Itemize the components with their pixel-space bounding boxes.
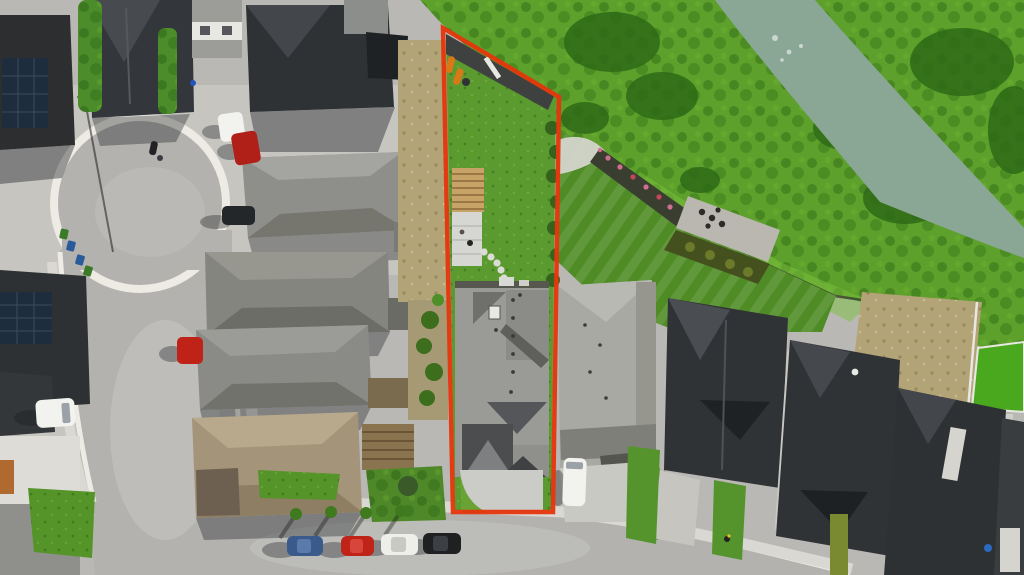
tanhouse-pergola xyxy=(362,424,414,470)
house3-roof-light-wing xyxy=(344,0,388,34)
solar-panels xyxy=(2,58,48,128)
artificial-turf xyxy=(972,342,1024,412)
red-car-left-driveway xyxy=(177,337,203,364)
olive-side-strip xyxy=(830,514,848,575)
tanhouse-garage-dark xyxy=(196,468,240,516)
patio-furniture xyxy=(460,230,465,235)
rear-deck xyxy=(499,277,514,286)
row-front-lawn-1 xyxy=(626,446,660,544)
subject-house xyxy=(455,277,549,477)
building-light-wall xyxy=(192,22,242,40)
building-window xyxy=(200,26,210,35)
aerial-photo-canvas xyxy=(0,0,1024,575)
blue-bin-row xyxy=(984,544,992,552)
hedge-strip-2-tex xyxy=(158,28,177,114)
house3-shadow xyxy=(250,107,395,152)
grill xyxy=(467,240,473,246)
corner-lawn-tex xyxy=(258,470,340,500)
patio xyxy=(452,212,482,266)
blue-bin-topleft xyxy=(190,80,196,86)
row-driveway-1 xyxy=(652,470,700,546)
red-truck-top xyxy=(230,130,261,166)
hedge-strip-1-tex xyxy=(78,0,102,112)
farleft-orange-accent xyxy=(0,460,14,494)
tanhouse-garden-feature xyxy=(398,476,418,496)
white-car-roof xyxy=(391,537,406,552)
skylight xyxy=(489,306,500,319)
subject-lot xyxy=(398,34,564,513)
rear-step xyxy=(519,280,529,286)
pathway-object xyxy=(462,78,470,86)
white-van-left-windshield xyxy=(61,403,70,424)
gap-walk-3 xyxy=(1000,528,1020,572)
corner-lawn-left-tex xyxy=(28,488,95,558)
houses-bottom-right xyxy=(626,292,1024,575)
building-window2 xyxy=(222,26,232,35)
corner-lawn-right xyxy=(258,470,340,500)
row-front-lawn-2 xyxy=(712,480,746,560)
dirt-strip-left-tex xyxy=(398,40,448,302)
white-van-neighbor-windshield xyxy=(566,462,583,470)
red-car-roof xyxy=(350,539,363,553)
dark-car-driveway xyxy=(222,206,255,225)
black-car-roof xyxy=(433,536,448,551)
house2-shadow xyxy=(92,114,190,146)
blue-car-roof xyxy=(297,539,311,553)
pedestrian-vest xyxy=(727,534,730,537)
motorcycle-rider xyxy=(157,155,163,161)
rowhouse2-vent-white xyxy=(852,369,859,376)
aerial-photo xyxy=(0,0,1024,575)
